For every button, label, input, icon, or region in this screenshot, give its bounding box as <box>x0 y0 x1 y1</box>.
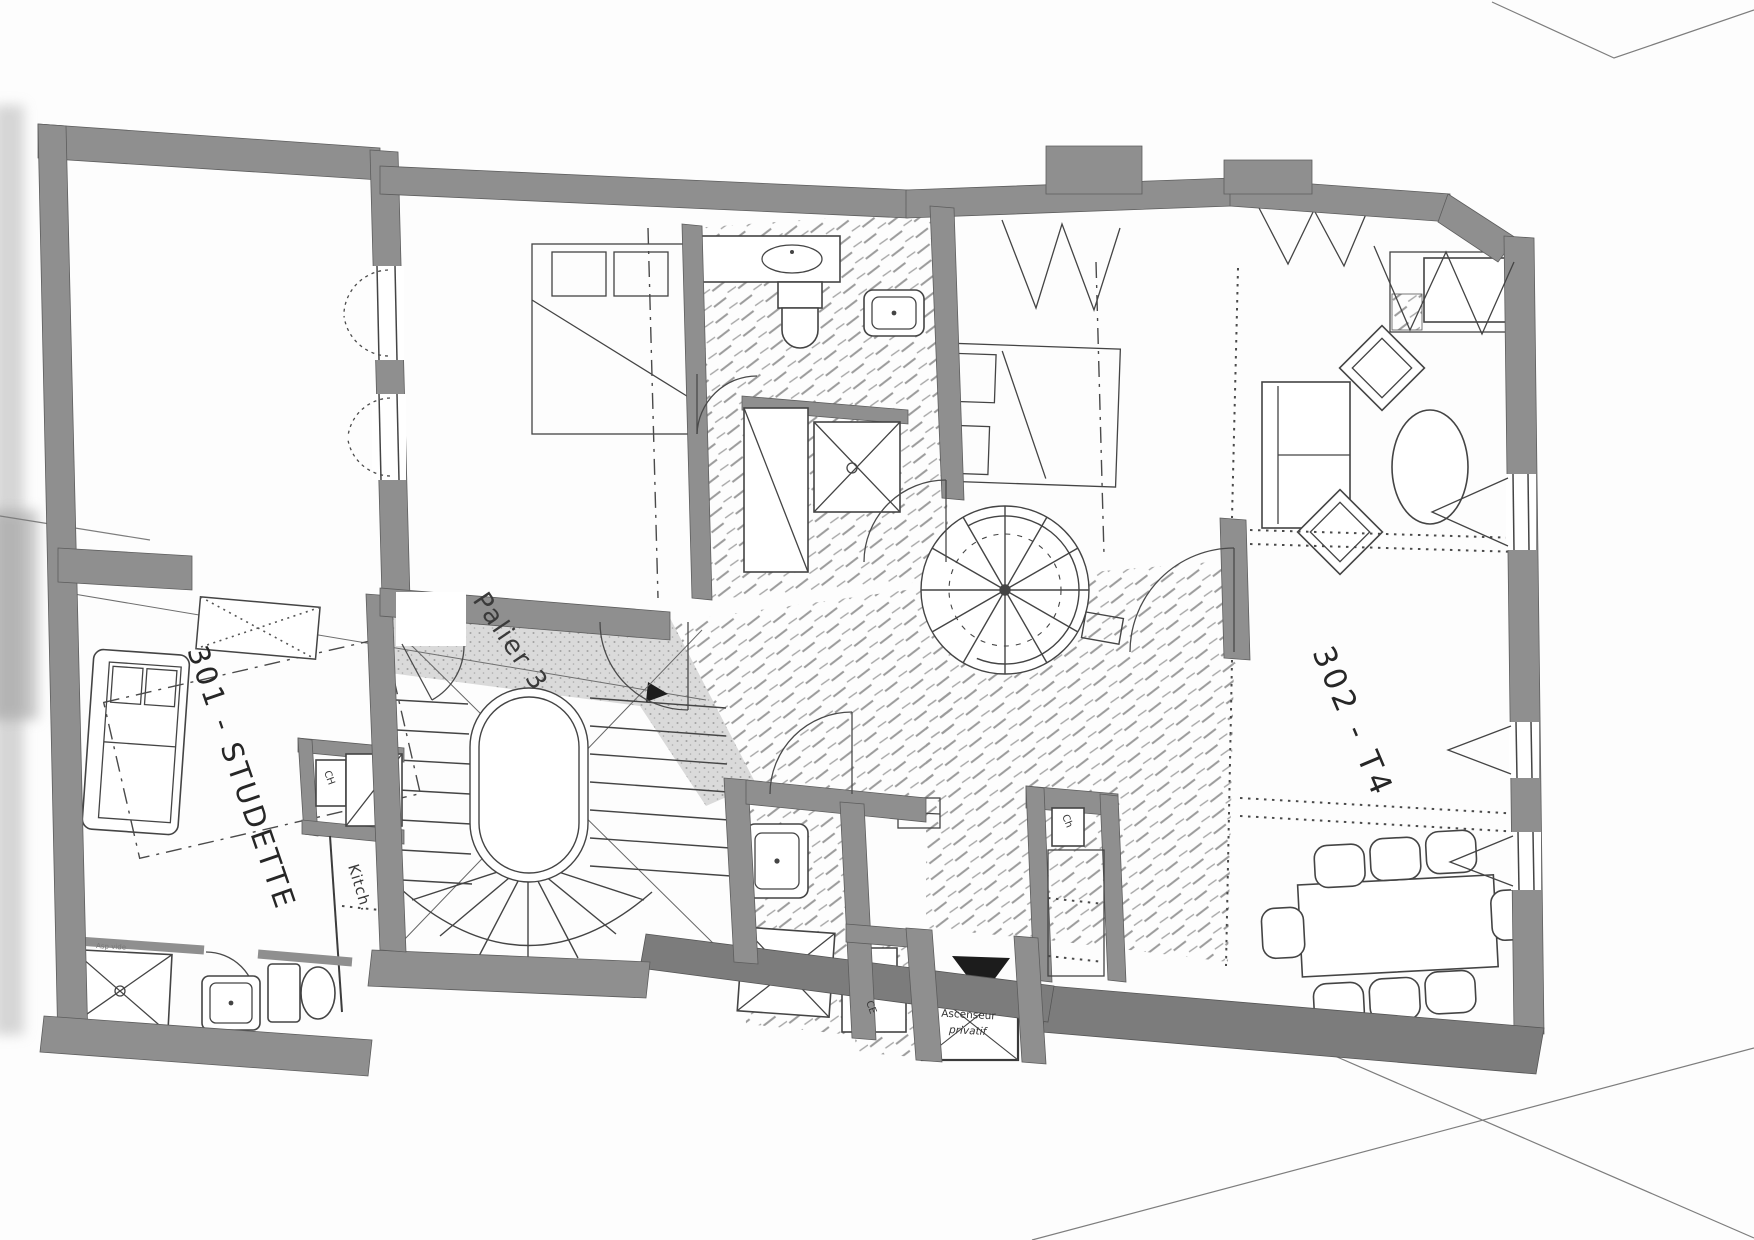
curtained-window <box>1002 220 1120 310</box>
bedroom-2 <box>946 220 1121 555</box>
bed-2 <box>946 343 1121 487</box>
pillow <box>614 252 668 296</box>
floor-plan-drawing: 301 - STUDETTE 302 - T4 Palier 3 Kitch. … <box>0 0 1754 1240</box>
bedroom-1 <box>532 228 690 598</box>
armchair-1 <box>1340 326 1425 411</box>
scan-fold-line-top-right <box>1492 2 1754 58</box>
label-unit-302: 302 - T4 <box>1305 641 1401 803</box>
dining-chair <box>1424 970 1476 1015</box>
floor-plan-page: 301 - STUDETTE 302 - T4 Palier 3 Kitch. … <box>0 0 1754 1240</box>
dining-chair <box>1369 837 1421 882</box>
wall-terrace-bump <box>58 548 192 590</box>
wall-notch-2 <box>1224 160 1312 194</box>
wall-living-stub <box>1220 518 1250 660</box>
toilet-studette <box>268 964 335 1022</box>
wall-stair-bottom <box>368 950 650 998</box>
label-unit-301: 301 - STUDETTE <box>180 641 302 914</box>
toilet-upper <box>778 282 822 348</box>
label-corner-note: Asp vide <box>96 942 126 952</box>
sofa-studette <box>82 649 190 835</box>
bathroom-studette <box>64 940 352 1033</box>
dining-chair <box>1261 907 1306 959</box>
vanity-counter <box>700 236 840 282</box>
dining-chair <box>1314 844 1366 889</box>
right-wall-window-2 <box>1448 722 1539 778</box>
wall-top-main <box>380 166 908 218</box>
label-kitchen: Kitch. <box>344 862 375 914</box>
pillow <box>552 252 606 296</box>
stair-outer-curve <box>402 890 652 946</box>
shower-upper <box>814 422 900 512</box>
terrace-french-window-2 <box>348 394 406 480</box>
label-elevator-line2: privatif <box>948 1024 989 1038</box>
dining-set <box>1257 827 1538 1029</box>
spiral-center-pole <box>1000 585 1010 595</box>
scan-fold-line-bottom-right-1 <box>1032 1048 1754 1240</box>
ceiling-slope-line <box>648 228 658 598</box>
dining-chair <box>1425 830 1477 875</box>
door-landing <box>396 592 466 700</box>
stair-treads-left <box>396 700 472 884</box>
terrace-french-window-1 <box>344 266 404 360</box>
wall-terrace-divider <box>370 150 410 600</box>
living-room-302 <box>1226 206 1539 1029</box>
oval-coffee-table <box>1392 410 1468 524</box>
ceiling-line <box>1096 262 1104 555</box>
bed-1 <box>532 244 690 434</box>
wall-notch-1 <box>1046 146 1142 194</box>
wall-top-left <box>38 124 380 180</box>
wall-left <box>38 124 88 1048</box>
stair-oval-core-outer <box>470 688 588 882</box>
dining-table <box>1298 875 1499 977</box>
